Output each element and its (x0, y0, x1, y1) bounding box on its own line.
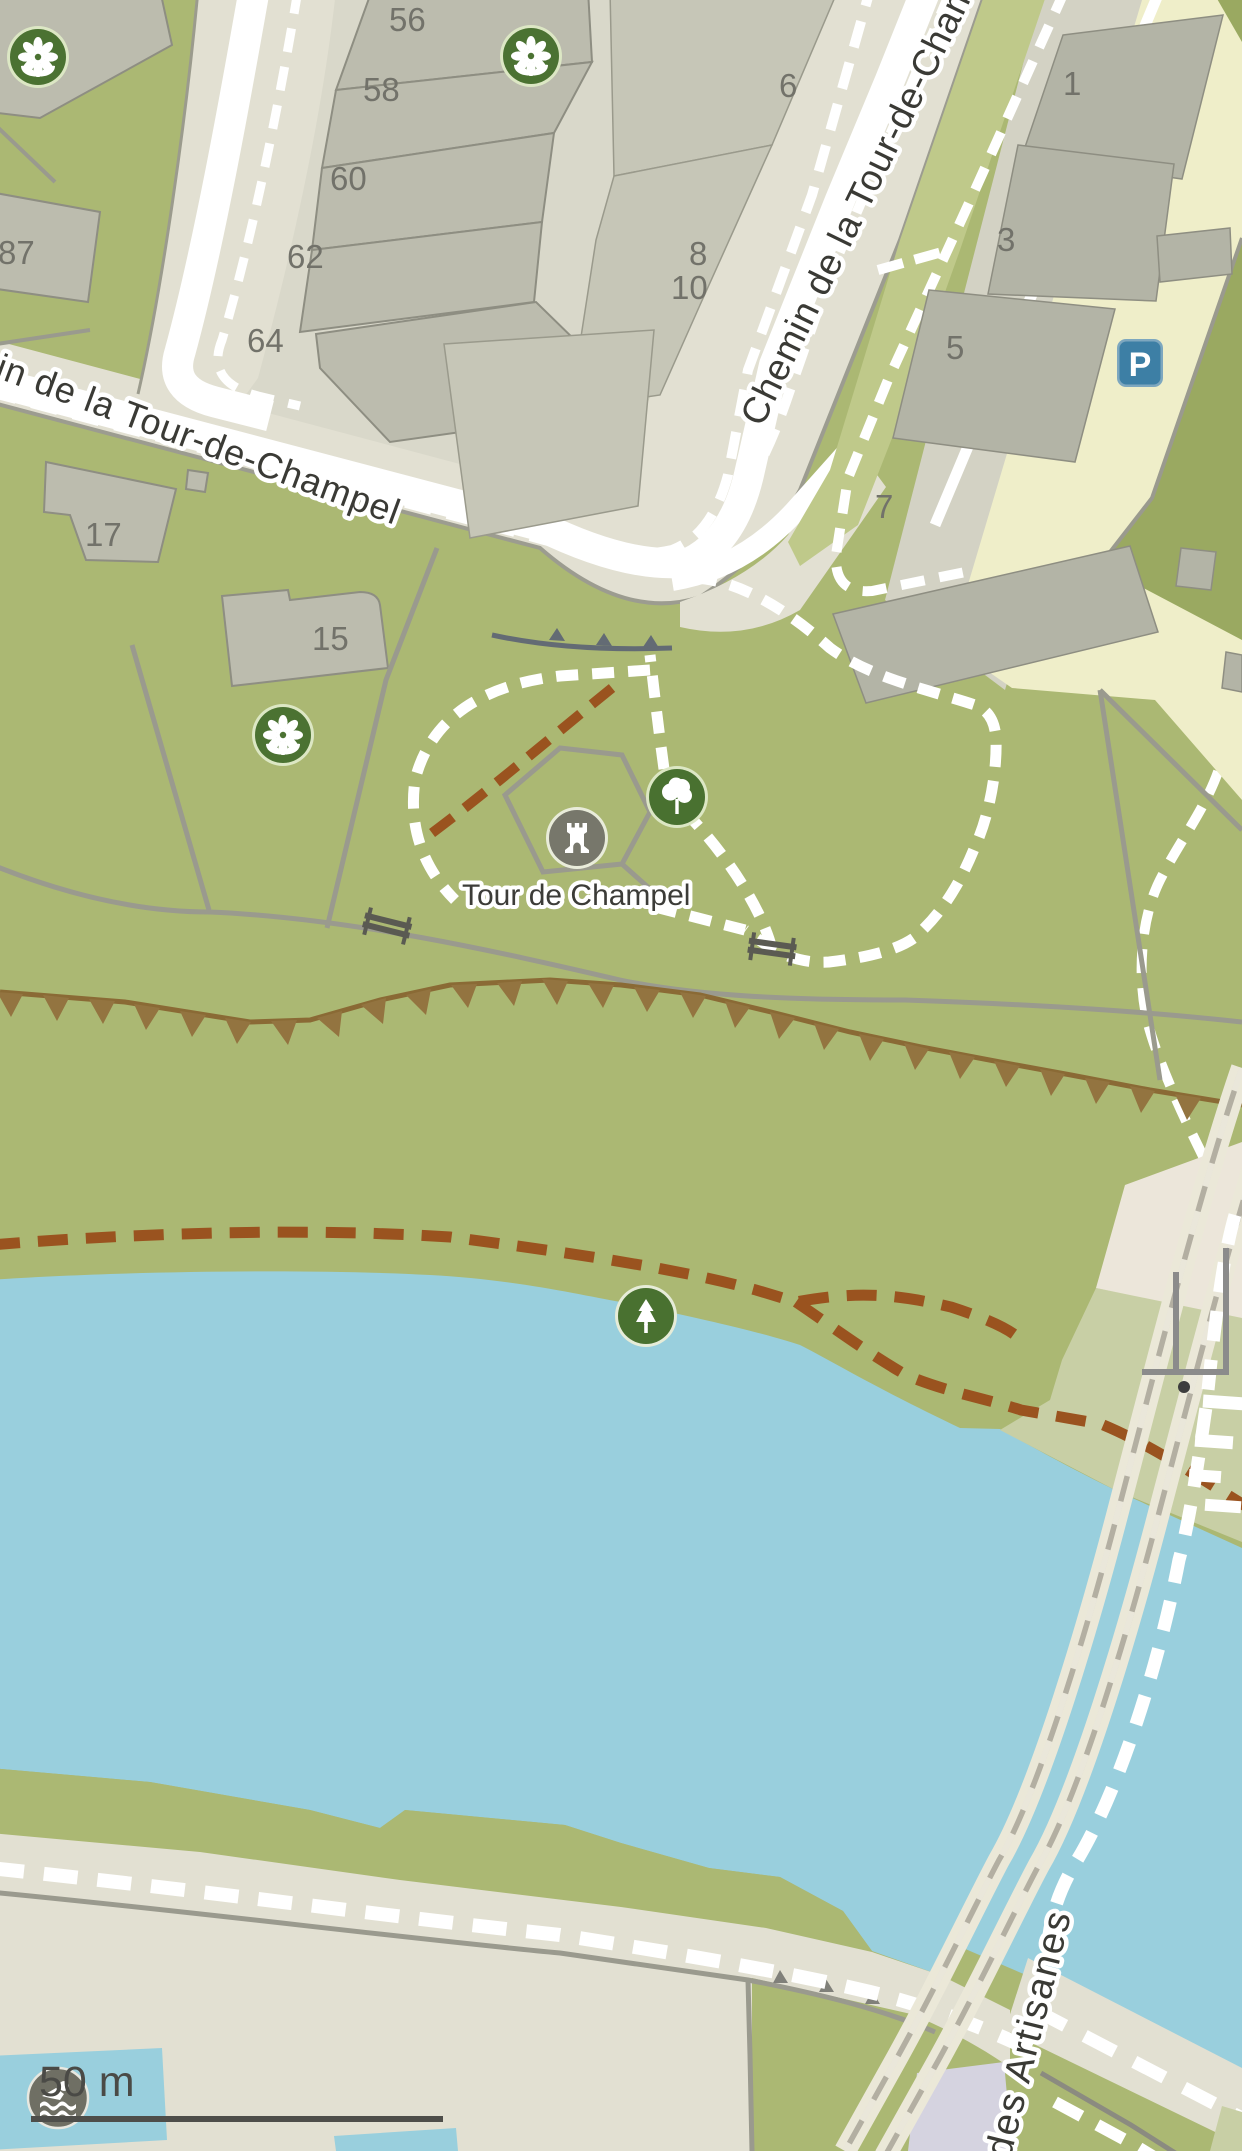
svg-text:10: 10 (671, 269, 708, 306)
svg-text:87: 87 (0, 234, 35, 271)
svg-text:17: 17 (85, 516, 122, 553)
svg-text:P: P (1129, 346, 1152, 384)
svg-text:7: 7 (875, 488, 893, 525)
svg-text:60: 60 (330, 160, 367, 197)
svg-text:Tour de Champel: Tour de Champel (462, 879, 690, 912)
svg-text:8: 8 (689, 235, 707, 272)
svg-text:50 m: 50 m (39, 2058, 135, 2106)
svg-text:62: 62 (287, 238, 324, 275)
svg-text:56: 56 (389, 1, 426, 38)
svg-text:15: 15 (312, 620, 349, 657)
svg-text:5: 5 (946, 329, 964, 366)
svg-text:6: 6 (779, 67, 797, 104)
svg-text:64: 64 (247, 322, 284, 359)
svg-text:3: 3 (997, 221, 1015, 258)
svg-text:1: 1 (1063, 65, 1081, 102)
svg-text:58: 58 (363, 71, 400, 108)
